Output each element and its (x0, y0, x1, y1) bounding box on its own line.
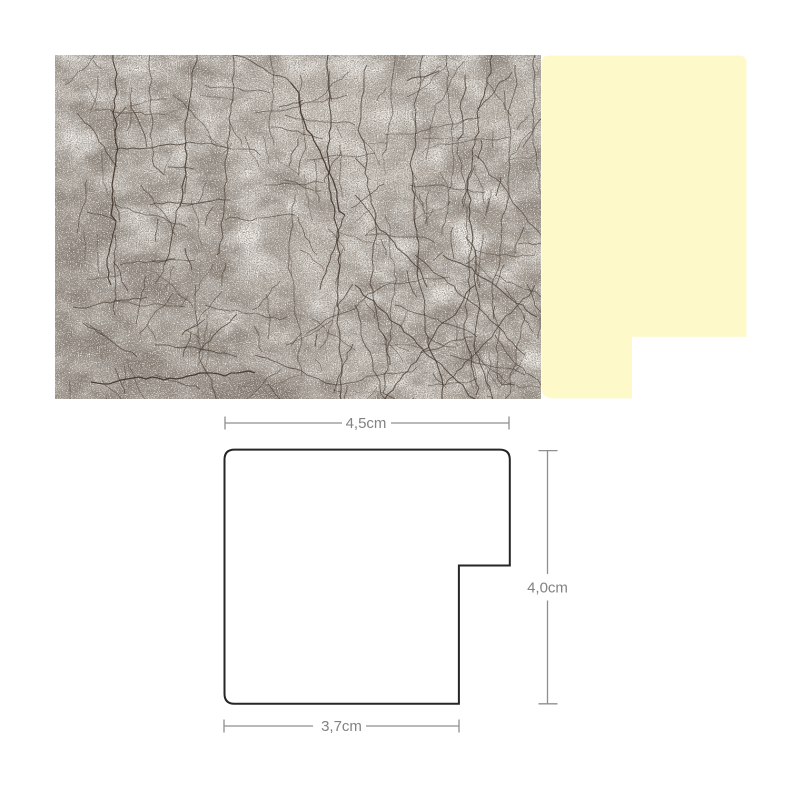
svg-text:3,7cm: 3,7cm (321, 718, 362, 735)
svg-text:4,5cm: 4,5cm (346, 415, 387, 432)
svg-text:4,0cm: 4,0cm (527, 580, 568, 597)
